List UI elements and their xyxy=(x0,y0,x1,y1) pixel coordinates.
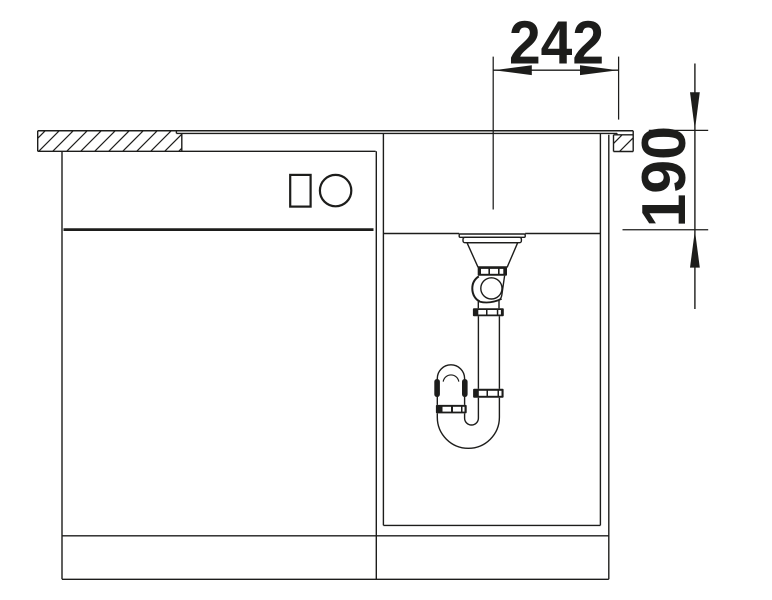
svg-text:190: 190 xyxy=(630,126,699,228)
svg-text:242: 242 xyxy=(509,9,604,77)
